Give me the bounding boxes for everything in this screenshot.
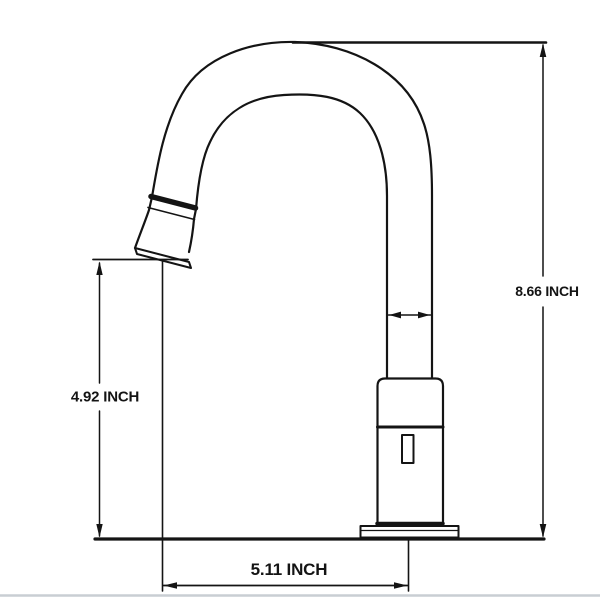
dimension-spout-reach — [163, 260, 408, 591]
spout-tip-band — [151, 197, 196, 209]
base-flange — [361, 526, 459, 538]
dimension-label-outlet-height: 4.92 INCH — [69, 389, 141, 406]
faucet-dimension-diagram: 8.66 INCH 4.92 INCH 5.11 INCH — [0, 0, 600, 600]
faucet-drawing — [0, 0, 600, 600]
sensor-window — [402, 435, 414, 463]
dimension-label-total-height: 8.66 INCH — [513, 283, 581, 299]
arrow-down-icon — [540, 524, 547, 538]
arrow-left-icon — [389, 312, 401, 319]
arrow-left-icon — [164, 582, 178, 588]
spout-inner-curve — [189, 94, 387, 378]
dimension-label-spout-reach: 5.11 INCH — [249, 560, 330, 580]
pipe-width-indicator — [389, 312, 431, 319]
arrow-right-icon — [418, 312, 430, 319]
spout-tip-trim-line — [148, 208, 195, 220]
arrow-right-icon — [394, 582, 408, 588]
arrow-up-icon — [540, 44, 547, 58]
arrow-down-icon — [96, 524, 102, 538]
arrow-up-icon — [96, 262, 102, 276]
